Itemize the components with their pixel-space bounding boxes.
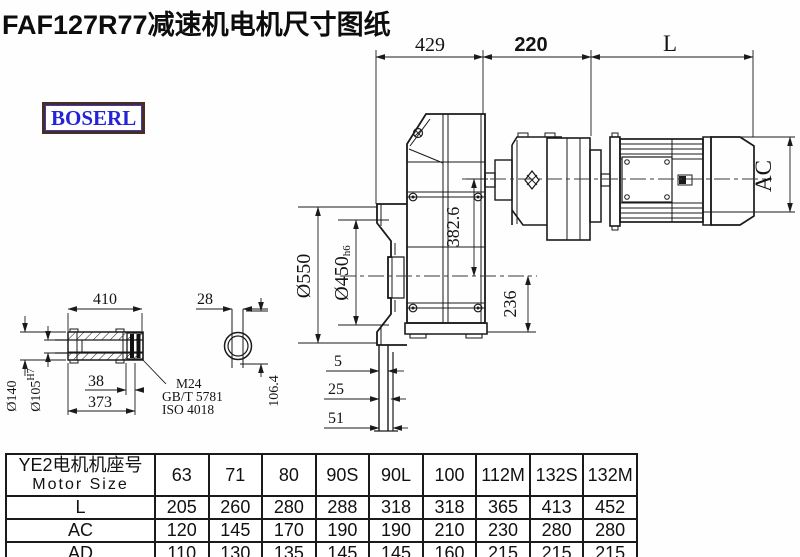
dimension-drawing: 429 220 L Ø550 Ø450h6 382.6 236 AC xyxy=(0,0,800,452)
motor-size-table: YE2电机机座号 Motor Size 63 71 80 90S 90L 100… xyxy=(5,453,638,557)
table-col-header: 90S xyxy=(316,454,370,496)
table-row-header: YE2电机机座号 Motor Size xyxy=(6,454,155,496)
dim-L: L xyxy=(663,31,677,56)
top-dimensions xyxy=(376,50,753,204)
table-cell: 210 xyxy=(423,519,477,542)
table-cell: 145 xyxy=(209,519,263,542)
dim-450h6: Ø450h6 xyxy=(331,245,353,301)
table-col-header: 100 xyxy=(423,454,477,496)
table-row-label: AC xyxy=(6,519,155,542)
table-cell: 318 xyxy=(423,496,477,519)
table-cell: 280 xyxy=(583,519,637,542)
table-row-L: L 205 260 280 288 318 318 365 413 452 xyxy=(6,496,637,519)
dim-550: Ø550 xyxy=(293,254,315,298)
dim-373: 373 xyxy=(88,394,112,411)
table-cell: 365 xyxy=(476,496,530,519)
table-cell: 318 xyxy=(369,496,423,519)
table-cell: 288 xyxy=(316,496,370,519)
dim-25: 25 xyxy=(328,381,344,398)
ac-dimension xyxy=(703,137,795,212)
table-cell: 280 xyxy=(262,496,316,519)
table-cell: 190 xyxy=(369,519,423,542)
brand-logo-text: BOSERL xyxy=(45,105,142,131)
table-col-header: 71 xyxy=(209,454,263,496)
shaft-section xyxy=(225,309,252,368)
brand-logo: BOSERL xyxy=(42,102,145,134)
table-cell: 452 xyxy=(583,496,637,519)
table-row-label: AD xyxy=(6,542,155,557)
motor-size-label-en: Motor Size xyxy=(7,475,154,494)
dim-5: 5 xyxy=(334,353,342,370)
table-cell: 413 xyxy=(530,496,584,519)
table-header-row: YE2电机机座号 Motor Size 63 71 80 90S 90L 100… xyxy=(6,454,637,496)
dim-51: 51 xyxy=(328,410,344,427)
table-cell: 145 xyxy=(369,542,423,557)
dim-106: 106.4 xyxy=(267,375,282,407)
table-col-header: 63 xyxy=(155,454,209,496)
dim-105H7: Ø105H7 xyxy=(26,368,44,411)
table-cell: 110 xyxy=(155,542,209,557)
dim-410: 410 xyxy=(93,291,117,308)
hollow-shaft xyxy=(55,329,143,363)
table-row-label: L xyxy=(6,496,155,519)
dim-140: Ø140 xyxy=(5,380,20,411)
motor-size-label-zh: YE2电机机座号 xyxy=(7,456,154,475)
dim-28: 28 xyxy=(197,291,213,308)
table-cell: 190 xyxy=(316,519,370,542)
table-cell: 160 xyxy=(423,542,477,557)
table-cell: 215 xyxy=(583,542,637,557)
table-cell: 280 xyxy=(530,519,584,542)
table-col-header: 132S xyxy=(530,454,584,496)
table-col-header: 112M xyxy=(476,454,530,496)
centerlines xyxy=(340,179,772,276)
motor xyxy=(590,133,754,230)
table-col-header: 90L xyxy=(369,454,423,496)
table-cell: 170 xyxy=(262,519,316,542)
page-title: FAF127R77减速机电机尺寸图纸 xyxy=(2,3,391,42)
table-cell: 230 xyxy=(476,519,530,542)
output-flange xyxy=(374,204,407,431)
table-cell: 215 xyxy=(530,542,584,557)
adapter-bell xyxy=(485,133,590,240)
table-col-header: 132M xyxy=(583,454,637,496)
label-iso-standard: ISO 4018 xyxy=(162,402,214,417)
page: 429 220 L Ø550 Ø450h6 382.6 236 AC xyxy=(0,0,800,557)
table-cell: 145 xyxy=(316,542,370,557)
table-col-header: 80 xyxy=(262,454,316,496)
dim-236: 236 xyxy=(500,291,520,318)
table-cell: 215 xyxy=(476,542,530,557)
table-cell: 120 xyxy=(155,519,209,542)
table-cell: 135 xyxy=(262,542,316,557)
table-cell: 205 xyxy=(155,496,209,519)
table-cell: 130 xyxy=(209,542,263,557)
dim-38: 38 xyxy=(88,373,104,390)
dim-AC: AC xyxy=(751,160,776,192)
table-cell: 260 xyxy=(209,496,263,519)
dim-220: 220 xyxy=(514,34,547,56)
table-row-AD: AD 110 130 135 145 145 160 215 215 215 xyxy=(6,542,637,557)
dim-382: 382.6 xyxy=(443,207,463,248)
table-row-AC: AC 120 145 170 190 190 210 230 280 280 xyxy=(6,519,637,542)
dim-429: 429 xyxy=(415,34,445,56)
